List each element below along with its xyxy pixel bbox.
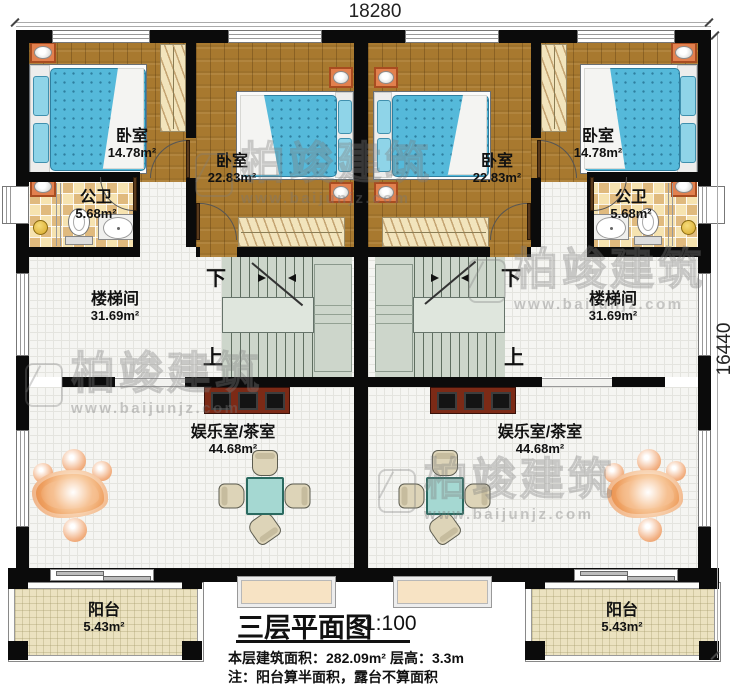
stair-tread <box>486 333 487 380</box>
tea-table-left <box>246 477 284 515</box>
stair-up-label-right: 上 <box>504 341 524 370</box>
window <box>698 430 711 527</box>
stair-tread <box>432 333 433 380</box>
stair-tread <box>276 333 277 380</box>
stair-tread <box>312 257 313 297</box>
stair-tread <box>303 333 304 380</box>
window-bay-bathroom-left <box>2 186 29 224</box>
stair-tread <box>450 257 451 297</box>
room-label-bathroom-right: 公卫5.68m² <box>610 189 651 221</box>
door-leaf <box>590 177 594 211</box>
stair-flight-upper-left <box>231 257 314 297</box>
balcony-post <box>8 568 28 589</box>
door-leaf <box>537 140 541 178</box>
balcony-post <box>182 568 202 589</box>
stair-tread <box>258 333 259 380</box>
stair-tread <box>231 333 232 380</box>
closet-right <box>541 44 567 132</box>
room-label-balcony-right: 阳台5.43m² <box>601 602 642 634</box>
window-bay-bathroom-right <box>698 186 725 224</box>
nightstand <box>374 67 398 88</box>
tea-table-right <box>426 477 464 515</box>
stair-tread <box>276 257 277 297</box>
rock-decor-left <box>32 470 108 518</box>
stair-down-label-left: 下 <box>206 262 226 291</box>
balcony-post <box>525 641 545 660</box>
stair-tread <box>231 257 232 297</box>
nightstand <box>671 42 697 63</box>
window <box>16 430 29 527</box>
title-underline <box>236 640 410 643</box>
stair-tread <box>441 333 442 380</box>
door-leaf <box>133 177 137 211</box>
balcony-slider-left <box>50 569 154 581</box>
rock-decor-right <box>607 470 683 518</box>
wide-opening-right <box>542 378 612 387</box>
room-label-balcony-left: 阳台5.43m² <box>83 602 124 634</box>
stair-tread <box>450 333 451 380</box>
room-label-bedroom-small-left: 卧室14.78m² <box>108 128 156 160</box>
room-label-bathroom-left: 公卫5.68m² <box>75 189 116 221</box>
window <box>16 273 29 356</box>
stair-down-label-right: 下 <box>501 262 521 291</box>
balcony-post <box>699 641 719 660</box>
room-label-bedroom-small-right: 卧室14.78m² <box>574 128 622 160</box>
wall-center <box>354 30 368 582</box>
room-label-entertainment-right: 娱乐室/茶室44.68m² <box>498 424 582 456</box>
stair-tread <box>303 257 304 297</box>
floor-area-text: 本层建筑面积：282.09m² <box>228 648 386 668</box>
room-label-bedroom-large-right: 卧室22.83m² <box>473 153 521 185</box>
stair-flight-lower-right <box>414 333 497 380</box>
chair <box>465 484 491 509</box>
stair-tread <box>477 257 478 297</box>
window <box>228 30 322 43</box>
room-label-stairwell-right: 楼梯间31.69m² <box>589 291 637 323</box>
dimension-height: 16440 <box>714 318 736 380</box>
nightstand <box>30 42 56 63</box>
door-leaf <box>186 140 190 178</box>
stair-tread <box>249 333 250 380</box>
balcony-post <box>525 568 545 589</box>
stair-flight-lower-left <box>231 333 314 380</box>
stair-tread <box>414 333 415 380</box>
wardrobe-right <box>382 217 489 247</box>
tv-cabinet-left <box>204 387 290 414</box>
stair-tread <box>459 333 460 380</box>
dimension-width: 18280 <box>330 1 420 23</box>
window <box>698 273 711 356</box>
stair-tread <box>240 333 241 380</box>
stair-rail-left <box>314 264 352 372</box>
room-label-entertainment-left: 娱乐室/茶室44.68m² <box>191 424 275 456</box>
door-leaf <box>527 203 531 240</box>
nightstand <box>374 182 398 203</box>
plan-scale: 1:100 <box>364 612 417 636</box>
note-text: 注：阳台算半面积，露台不算面积 <box>228 667 438 687</box>
stair-tread <box>240 257 241 297</box>
stair-tread <box>423 257 424 297</box>
stair-tread <box>477 333 478 380</box>
room-label-stairwell-left: 楼梯间31.69m² <box>91 291 139 323</box>
bay-canopy-right <box>393 576 492 608</box>
balcony-post <box>8 641 28 660</box>
bay-canopy-left <box>237 576 336 608</box>
stair-tread <box>285 333 286 380</box>
door-leaf <box>196 203 200 240</box>
balcony-post <box>182 641 202 660</box>
stair-tread <box>294 333 295 380</box>
window <box>405 30 499 43</box>
shower-partition-right <box>668 183 673 246</box>
toilet <box>634 236 662 245</box>
stair-tread <box>249 257 250 297</box>
stair-tread <box>267 333 268 380</box>
nightstand <box>329 67 353 88</box>
window <box>52 30 150 43</box>
wide-opening-left <box>115 378 185 387</box>
stair-rail-right <box>375 264 413 372</box>
pebble-decor <box>63 518 87 542</box>
nightstand <box>329 182 353 203</box>
floor-height-text: 层高：3.3m <box>390 648 464 668</box>
balcony-slider-right <box>574 569 678 581</box>
closet-left <box>160 44 186 132</box>
tv-cabinet-right <box>430 387 516 414</box>
stair-tread <box>414 257 415 297</box>
balcony-post <box>699 568 719 589</box>
chair <box>285 484 311 509</box>
stair-tread <box>495 257 496 297</box>
chair <box>399 484 425 509</box>
wardrobe-left <box>238 217 345 247</box>
stair-up-label-left: 上 <box>203 341 223 370</box>
stair-tread <box>495 333 496 380</box>
shower-head <box>33 220 48 235</box>
pebble-decor <box>638 518 662 542</box>
chair <box>219 484 245 509</box>
stair-tread <box>486 257 487 297</box>
room-label-bedroom-large-left: 卧室22.83m² <box>208 153 256 185</box>
shower-partition-left <box>56 183 61 246</box>
stair-tread <box>423 333 424 380</box>
window <box>577 30 675 43</box>
stair-tread <box>468 333 469 380</box>
chair <box>432 450 458 476</box>
floor-plan: 下 上 下 上 <box>0 0 750 694</box>
shower-head <box>681 220 696 235</box>
stair-tread <box>459 257 460 297</box>
stair-tread <box>312 333 313 380</box>
toilet <box>65 236 93 245</box>
